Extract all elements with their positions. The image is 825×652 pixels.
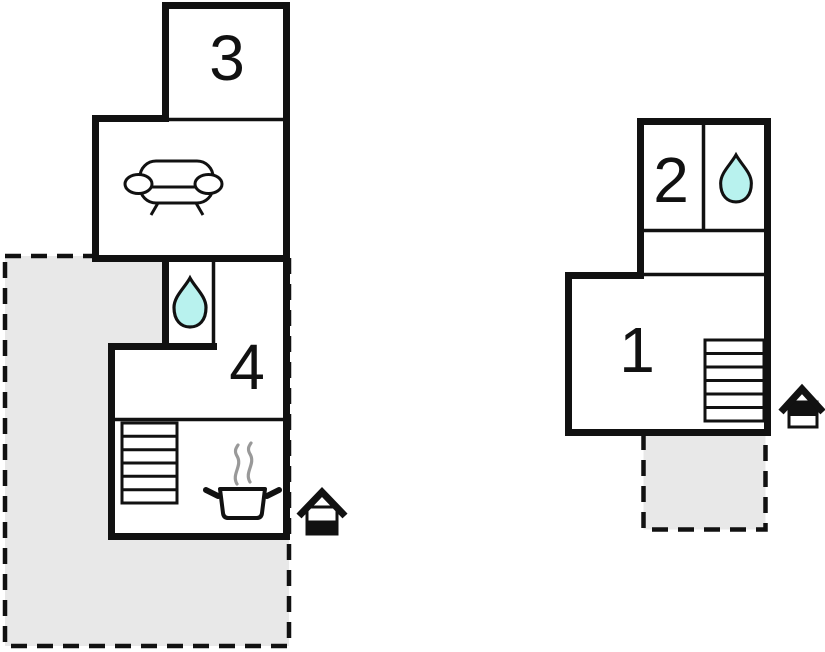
building-left: 3 4 [5, 6, 345, 647]
room-2-label: 2 [653, 144, 689, 216]
entrance-icon [781, 389, 823, 427]
floor-plan-drawing: 3 4 [0, 0, 825, 652]
floor-plan-canvas: 3 4 [0, 0, 825, 652]
terrace-right [644, 434, 766, 530]
stairs-icon [705, 340, 764, 421]
entrance-icon [299, 492, 345, 536]
room-3-label: 3 [209, 22, 245, 94]
building-right: 2 1 [569, 122, 824, 530]
room-1-label: 1 [619, 314, 655, 386]
stairs-icon [122, 423, 177, 503]
room-4-label: 4 [229, 331, 265, 403]
